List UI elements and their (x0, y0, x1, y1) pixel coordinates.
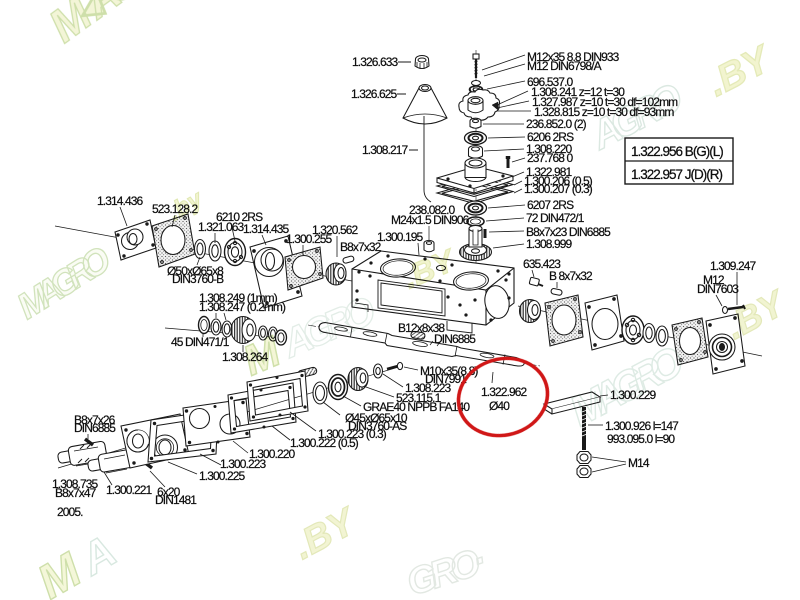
svg-text:1.322.957 J(D)(R): 1.322.957 J(D)(R) (631, 167, 723, 182)
svg-text:45 DIN471/1: 45 DIN471/1 (171, 335, 230, 349)
svg-text:1.308.999: 1.308.999 (526, 237, 573, 251)
svg-text:DIN7603: DIN7603 (697, 282, 739, 296)
svg-text:M12 DIN6798/A: M12 DIN6798/A (527, 59, 602, 73)
svg-text:1.300.207 (0.3): 1.300.207 (0.3) (524, 182, 593, 196)
svg-text:DIN6885: DIN6885 (434, 332, 476, 346)
svg-text:993.095.0 l=90: 993.095.0 l=90 (607, 432, 675, 446)
svg-text:.BY: .BY (287, 499, 366, 568)
svg-text:1.314.435: 1.314.435 (243, 222, 290, 236)
svg-text:1.309.247: 1.309.247 (710, 259, 757, 273)
svg-text:GRO·: GRO· (402, 540, 490, 600)
svg-text:1.308.217: 1.308.217 (362, 143, 409, 157)
svg-text:M14: M14 (628, 456, 650, 470)
svg-text:DIN1481: DIN1481 (155, 493, 197, 507)
svg-text:1.326.625: 1.326.625 (351, 87, 398, 101)
svg-text:1.308.247 (0.2mm): 1.308.247 (0.2mm) (199, 300, 286, 314)
svg-text:72 DIN472/1: 72 DIN472/1 (526, 211, 585, 225)
svg-text:1.300.926 l=147: 1.300.926 l=147 (605, 419, 679, 433)
svg-text:DIN6885: DIN6885 (74, 421, 116, 435)
svg-text:1.300.225: 1.300.225 (199, 469, 246, 483)
svg-text:1.314.436: 1.314.436 (97, 194, 144, 208)
svg-text:.BY: .BY (701, 37, 780, 105)
svg-text:M◂AGRO: M◂AGRO (39, 0, 191, 52)
svg-text:237.768 0: 237.768 0 (527, 151, 574, 165)
svg-text:1.326.633: 1.326.633 (352, 55, 399, 69)
svg-text:1.300.220: 1.300.220 (249, 447, 296, 461)
svg-text:1.321.063: 1.321.063 (198, 220, 245, 234)
svg-text:DIN3760-B: DIN3760-B (172, 272, 224, 286)
svg-text:1.322.956 B(G)(L): 1.322.956 B(G)(L) (631, 144, 723, 159)
svg-text:DIN3760-AS: DIN3760-AS (348, 419, 407, 433)
svg-text:B8x7x47: B8x7x47 (55, 486, 97, 500)
svg-text:2005.: 2005. (57, 505, 83, 519)
svg-text:1.322.962: 1.322.962 (481, 385, 528, 399)
svg-text:1.300.221: 1.300.221 (106, 483, 153, 497)
svg-text:B8x7x32: B8x7x32 (340, 240, 382, 254)
svg-text:MAGRO: MAGRO (10, 238, 118, 327)
svg-text:M24x1.5 DIN906: M24x1.5 DIN906 (391, 213, 470, 227)
svg-text:6207 2RS: 6207 2RS (527, 198, 574, 212)
svg-text:236.852.0 (2): 236.852.0 (2) (526, 117, 587, 131)
svg-text:B 8x7x32: B 8x7x32 (549, 269, 593, 283)
svg-text:Ø40: Ø40 (489, 399, 510, 413)
svg-text:1.300.195: 1.300.195 (377, 230, 424, 244)
svg-text:1.320.562: 1.320.562 (312, 223, 359, 237)
